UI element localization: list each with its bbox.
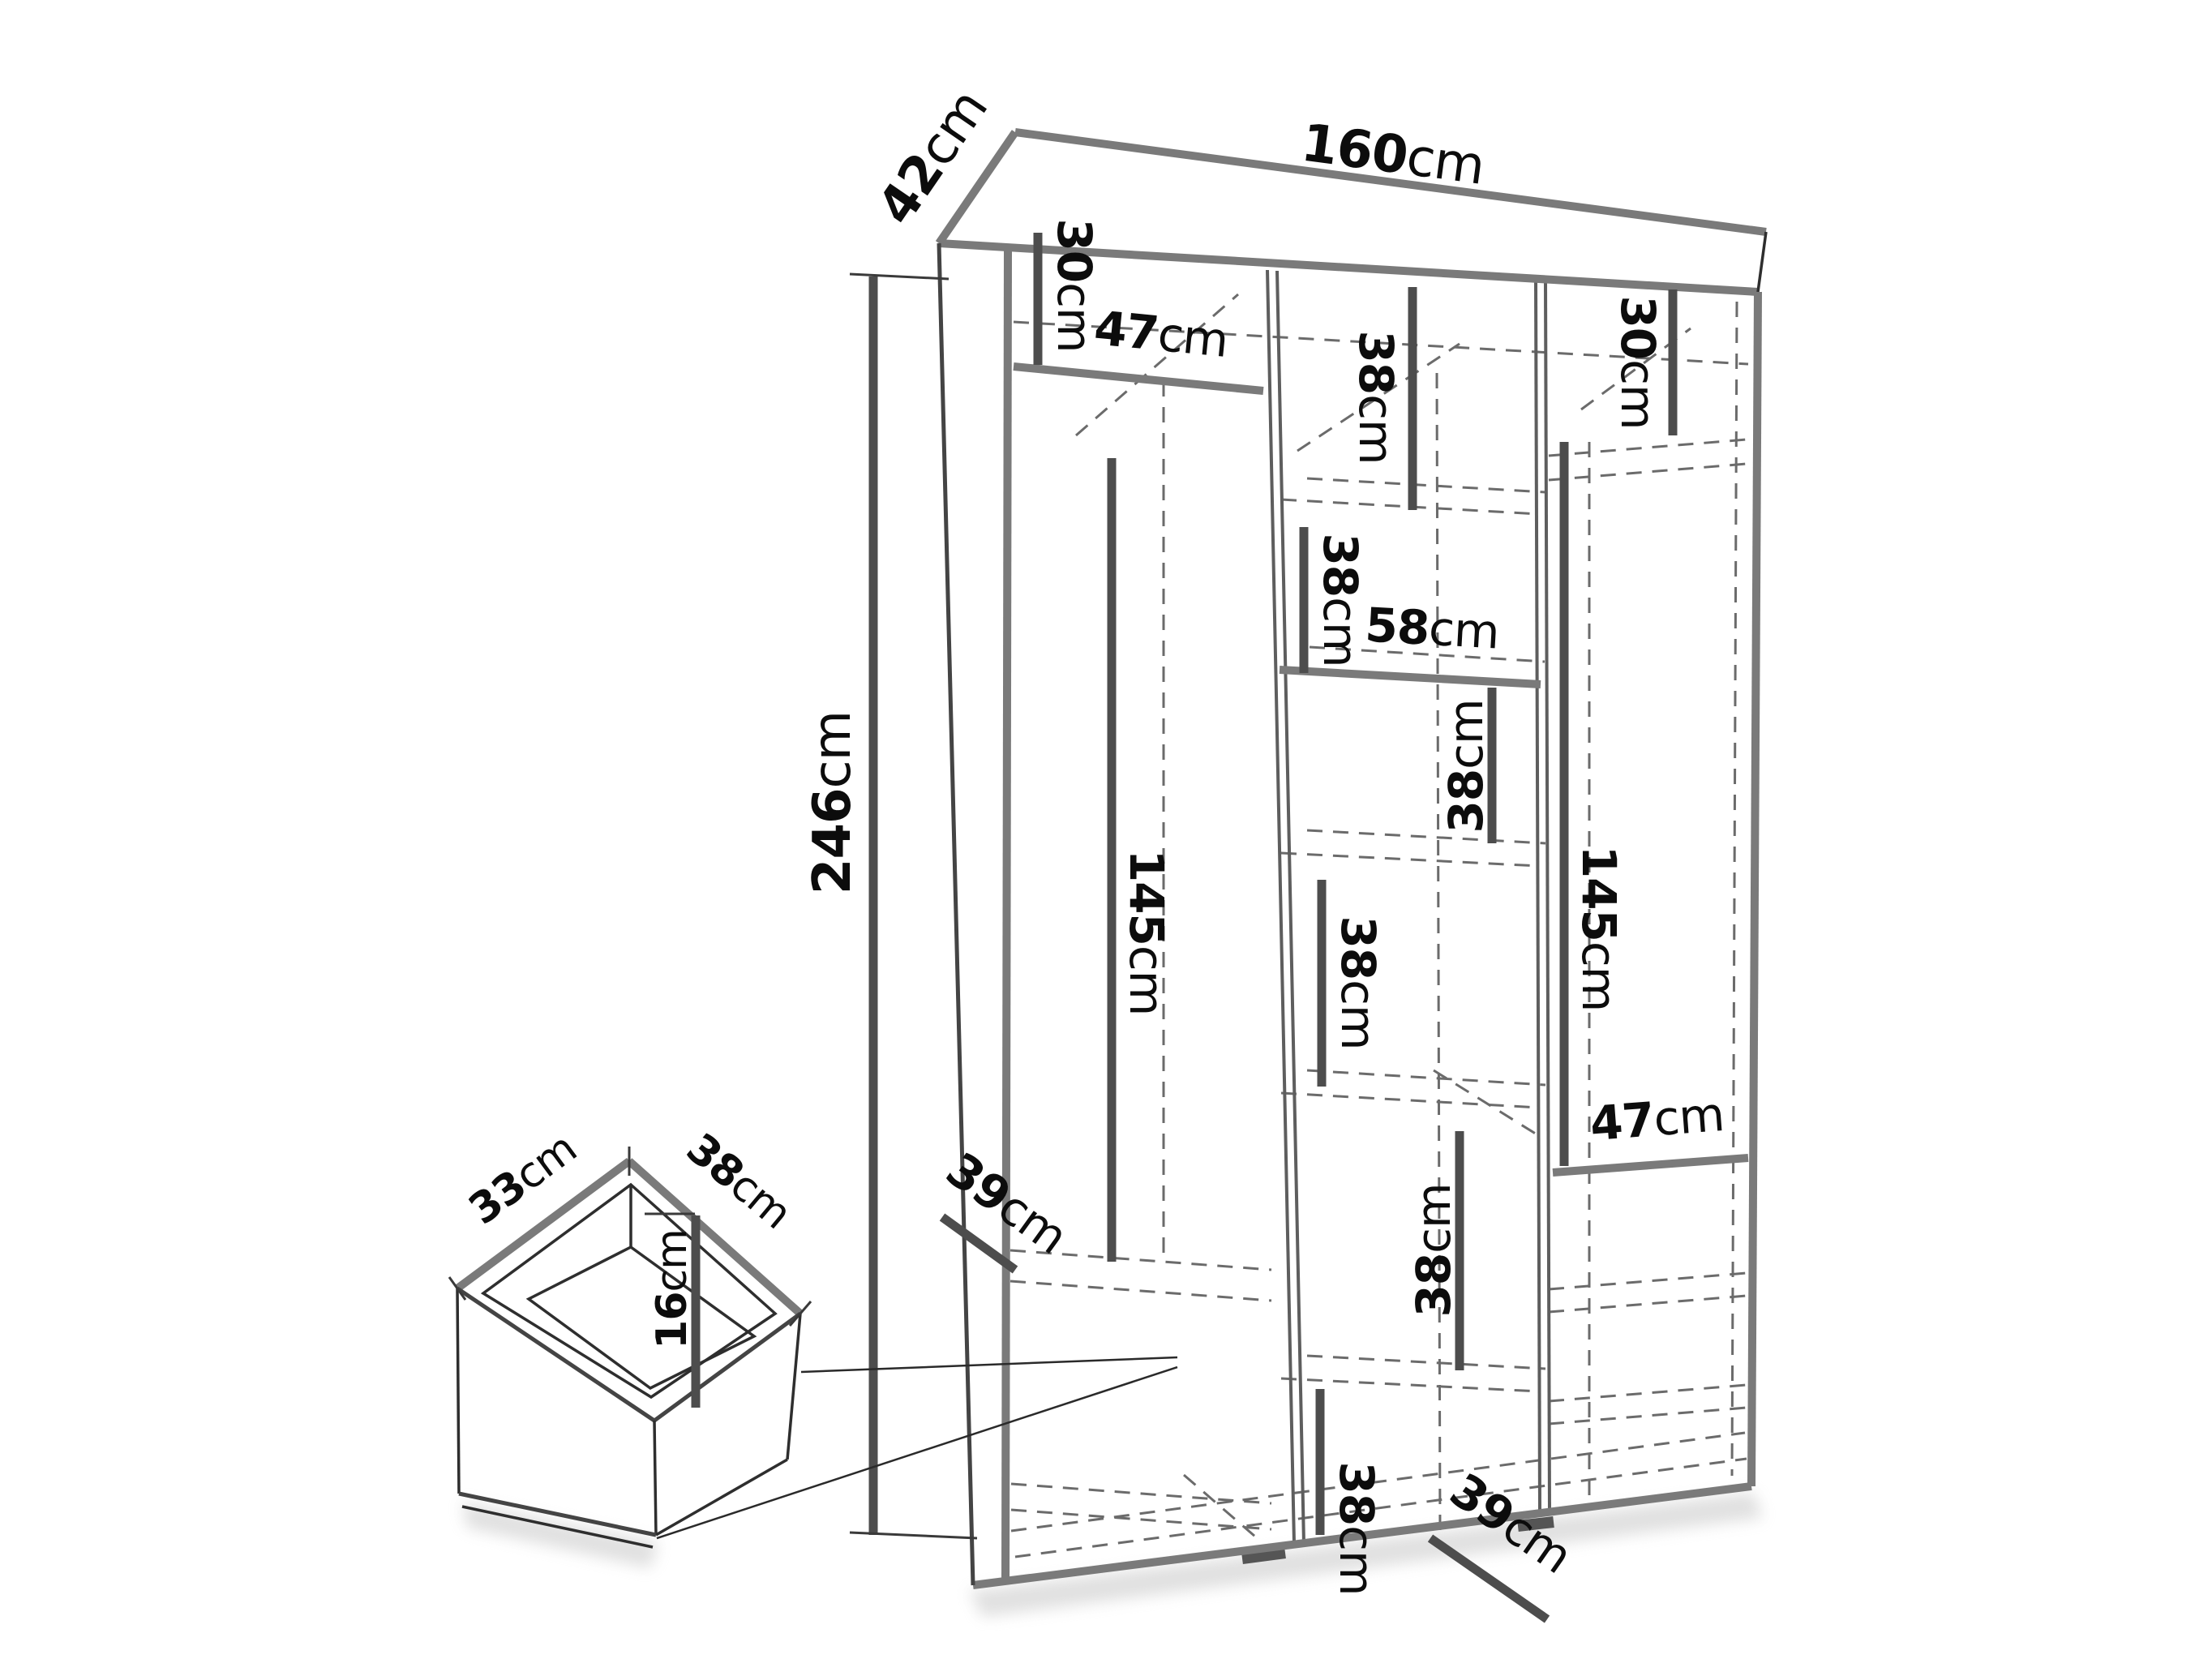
right-inner-edge-dashed — [1732, 302, 1737, 1476]
top-right-connector — [1758, 232, 1766, 292]
dim-left-hang-145: 145cm — [1119, 850, 1174, 1015]
left-outer-edge — [939, 243, 973, 1585]
right-shelf-47-line — [1553, 1158, 1748, 1172]
diagram-canvas: 160cm 42cm 246cm 30cm 47cm 145cm 39cm 38… — [0, 0, 2212, 1659]
left-lower-shelf-dashed-front — [1011, 1484, 1271, 1503]
dim-mid-38-bottom: 38cm — [1329, 1461, 1384, 1595]
dim-mid-38-top: 38cm — [1348, 330, 1404, 464]
right-outer-edge — [1751, 292, 1758, 1486]
left-shelf-dashed-back — [1010, 1281, 1271, 1301]
shelves — [1014, 367, 1748, 1172]
mid-shelf4-back-dashed — [1307, 1356, 1545, 1369]
right-shelf3-front-dashed — [1549, 1385, 1747, 1401]
dim-height-246: 246cm — [803, 711, 863, 894]
right-shelf1-back-dashed — [1549, 464, 1747, 480]
dim-mid-38-second: 38cm — [1313, 533, 1368, 667]
drawer-pointer-line-upper — [801, 1357, 1177, 1372]
right-shelf2-front-dashed — [1549, 1273, 1747, 1289]
right-shelf2-back-dashed — [1549, 1296, 1747, 1312]
dim-left-shelf-47: 47cm — [1091, 300, 1230, 368]
right-shelf3-back-dashed — [1549, 1408, 1747, 1424]
dim-mid-38-fifth: 38cm — [1406, 1183, 1461, 1317]
mid-shelf1-back-dashed — [1307, 478, 1545, 492]
mid-shelf3-back-dashed — [1307, 1070, 1545, 1085]
wardrobe-diagram: 160cm 42cm 246cm 30cm 47cm 145cm 39cm 38… — [0, 0, 2212, 1659]
dim-depth-42: 42cm — [867, 79, 1000, 235]
dim-right-top-30: 30cm — [1610, 295, 1665, 429]
dim-mid-shelf-58: 58cm — [1364, 597, 1501, 659]
height-246-tick-top — [850, 274, 949, 279]
left-inner-edge — [1005, 250, 1008, 1581]
partition-right-b — [1545, 280, 1550, 1512]
dim-width-160: 160cm — [1298, 114, 1488, 197]
dim-mid-38-third: 38cm — [1438, 699, 1494, 833]
partition-right-a — [1536, 279, 1540, 1511]
mid-shelf-58-line — [1280, 670, 1541, 684]
left-shelf-47-line — [1014, 367, 1263, 391]
drawer-right-corner-edge — [787, 1314, 800, 1460]
drawer-rim-front-left — [457, 1288, 654, 1421]
drawer-left-corner-edge — [457, 1288, 459, 1494]
dim-mid-38-fourth: 38cm — [1331, 915, 1386, 1049]
height-246-tick-bottom — [850, 1533, 977, 1538]
cabinet: 160cm 42cm 246cm 30cm 47cm 145cm 39cm 38… — [803, 79, 1766, 1619]
dim-drawer-depth-33: 33cm — [461, 1124, 585, 1234]
mid-shelf2-back-dashed — [1307, 830, 1545, 843]
drawer-pointer-line-lower — [657, 1367, 1177, 1538]
dim-right-hang-145: 145cm — [1571, 846, 1627, 1011]
dim-drawer-height-16: 16cm — [648, 1229, 697, 1349]
drawer-front-corner-edge — [654, 1421, 656, 1535]
right-shelf1-front-dashed — [1549, 439, 1747, 456]
drawer-detail: 33cm 38cm 16cm — [449, 1124, 1177, 1547]
mid-shelf2-front-dashed — [1281, 853, 1539, 866]
drawer-side-bottom-edge — [656, 1460, 787, 1535]
mid-shelf3-front-dashed — [1281, 1093, 1539, 1108]
dim-right-shelf-47: 47cm — [1588, 1087, 1726, 1151]
drawer-floor — [529, 1247, 754, 1388]
